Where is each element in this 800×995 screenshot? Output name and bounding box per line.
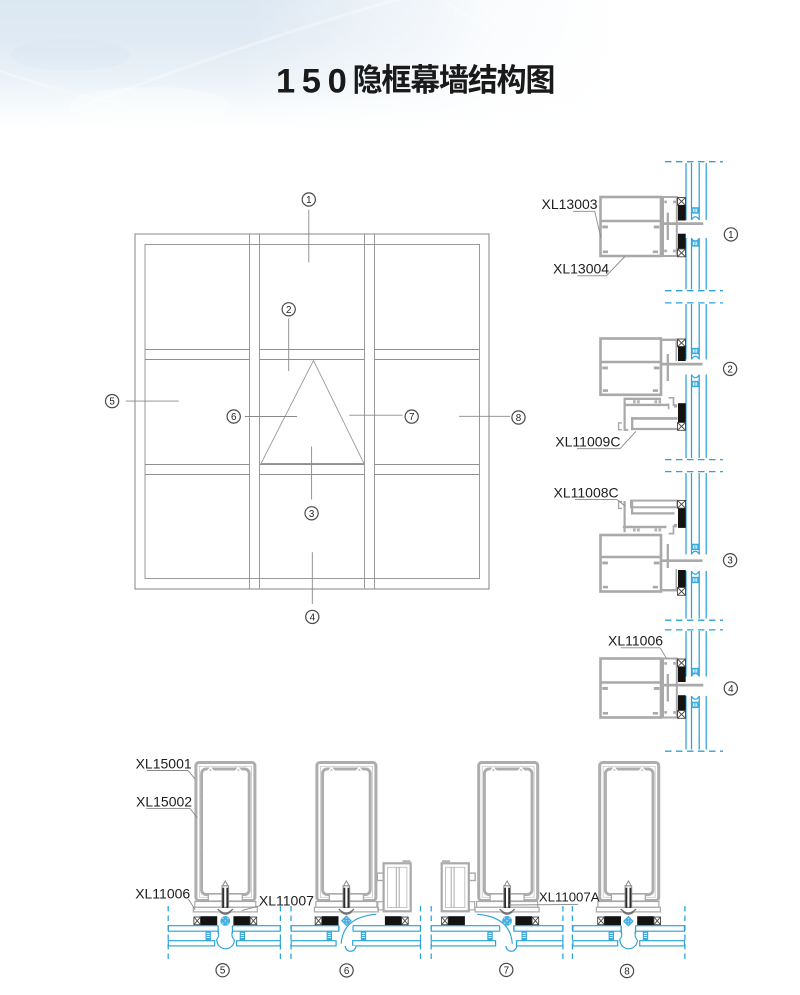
svg-text:XL11008C: XL11008C (554, 484, 619, 500)
svg-text:XL11007: XL11007 (259, 892, 314, 908)
svg-text:3: 3 (309, 509, 315, 520)
svg-text:4: 4 (310, 612, 316, 623)
svg-text:XL15001: XL15001 (136, 755, 192, 771)
svg-text:3: 3 (727, 556, 733, 567)
svg-text:2: 2 (727, 364, 732, 375)
svg-text:XL13003: XL13003 (542, 196, 598, 212)
svg-text:7: 7 (409, 412, 414, 423)
svg-text:1: 1 (728, 230, 733, 241)
svg-text:XL11007A: XL11007A (539, 889, 600, 904)
svg-text:8: 8 (516, 413, 522, 424)
svg-text:1: 1 (306, 195, 311, 206)
svg-text:XL11009C: XL11009C (555, 433, 620, 449)
svg-text:2: 2 (286, 305, 291, 316)
svg-text:5: 5 (109, 397, 115, 408)
svg-text:8: 8 (624, 967, 630, 978)
svg-text:7: 7 (504, 965, 509, 976)
svg-text:150: 150 (276, 63, 353, 101)
svg-text:6: 6 (231, 412, 237, 423)
svg-text:XL15002: XL15002 (136, 794, 192, 810)
svg-text:XL11006: XL11006 (135, 886, 190, 902)
svg-text:XL11006: XL11006 (608, 633, 663, 649)
svg-text:XL13004: XL13004 (553, 261, 609, 277)
svg-text:4: 4 (728, 684, 734, 695)
svg-text:5: 5 (220, 966, 226, 977)
svg-text:6: 6 (344, 966, 350, 977)
